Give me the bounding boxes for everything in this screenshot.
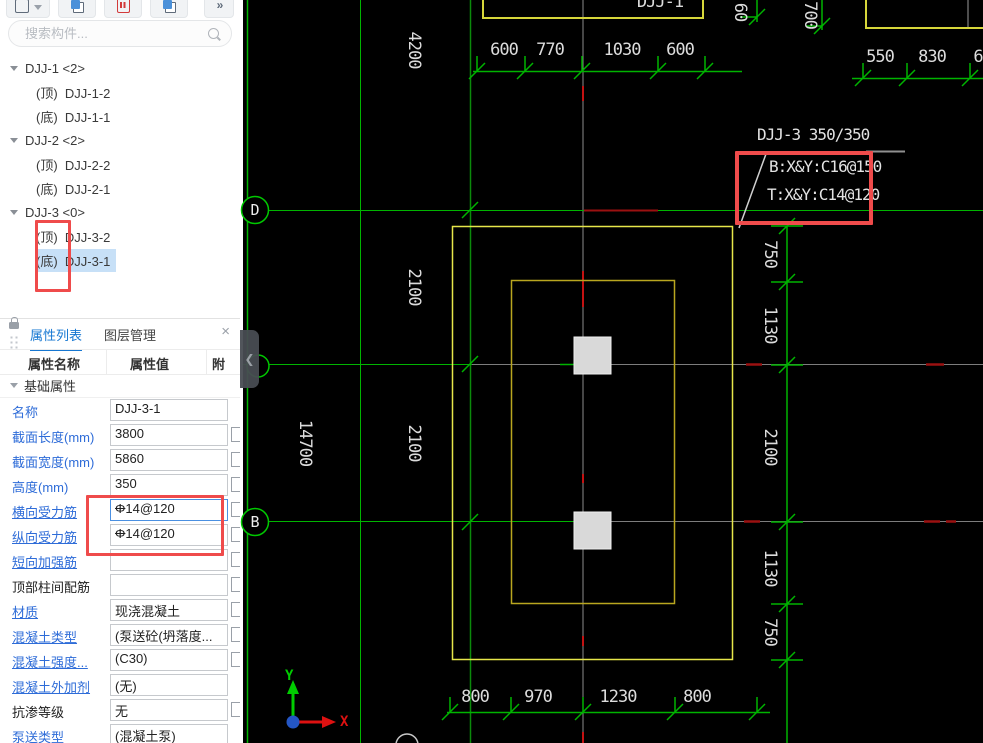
property-row-admixture: 混凝土外加剂 (无) [0, 672, 240, 697]
column-entity[interactable] [574, 337, 611, 374]
material-field[interactable]: 现浇混凝土 [110, 599, 228, 621]
collapse-triangle-icon[interactable] [10, 210, 18, 215]
dim-label: 4200 [404, 32, 424, 69]
dim-label: 550 [866, 47, 894, 67]
length-field[interactable]: 3800 [110, 424, 228, 446]
dim-label: 1230 [600, 687, 637, 707]
property-row-pump-type: 泵送类型 (混凝土泵) [0, 722, 240, 743]
double-chevron-icon: » [217, 0, 222, 12]
highlight-box-rebar-fields [86, 495, 224, 556]
search-icon [208, 28, 219, 39]
close-icon[interactable]: × [221, 323, 230, 340]
attach-checkbox[interactable] [231, 452, 240, 467]
attach-checkbox[interactable] [231, 502, 240, 517]
highlight-box-tree [35, 220, 71, 292]
property-row-name: 名称 DJJ-3-1 [0, 397, 240, 422]
dim-label: 700 [800, 1, 820, 29]
ucs-x-label: X [340, 714, 348, 730]
slab-label-top: DJJ-1 [637, 0, 683, 12]
property-row-length: 截面长度(mm) 3800 [0, 422, 240, 447]
dim-label: 750 [760, 618, 780, 646]
grid-bubble-bottom[interactable] [396, 734, 418, 743]
collapse-triangle-icon[interactable] [10, 138, 18, 143]
dim-label: 600 [490, 40, 518, 60]
app-window: DJJ-1 600 770 1030 600 550 830 6 60 700 … [0, 0, 983, 743]
highlight-box-annotation [735, 151, 873, 225]
property-row-impermeability: 抗渗等级 无 [0, 697, 240, 722]
dim-label: 1130 [760, 307, 780, 344]
column-entity[interactable] [574, 512, 611, 549]
name-field[interactable]: DJJ-3-1 [110, 399, 228, 421]
property-table-header: 属性名称 属性值 附 [0, 349, 240, 375]
copy-icon [71, 0, 84, 13]
search-input[interactable] [23, 25, 197, 42]
admixture-field[interactable]: (无) [110, 674, 228, 696]
copy-button[interactable] [58, 0, 96, 18]
attach-checkbox[interactable] [231, 477, 240, 492]
panel-collapse-handle[interactable]: ❮ [240, 330, 259, 388]
property-row-top-column-rebar: 顶部柱间配筋 [0, 572, 240, 597]
property-row-width: 截面宽度(mm) 5860 [0, 447, 240, 472]
drag-grip-icon[interactable] [9, 335, 19, 349]
width-field[interactable]: 5860 [110, 449, 228, 471]
dim-label: 6 [973, 47, 982, 67]
foundation-outline-inner[interactable] [512, 281, 675, 604]
tree-item-djj1-2[interactable]: (顶) DJJ-1-2 [0, 80, 240, 104]
tree-item-djj2-1[interactable]: (底) DJJ-2-1 [0, 176, 240, 200]
tree-group-djj1[interactable]: DJJ-1 <2> [0, 56, 240, 80]
toolbar-more-button[interactable]: » [204, 0, 234, 18]
lock-icon[interactable] [9, 322, 19, 329]
dim-label: 770 [536, 40, 564, 60]
attach-checkbox[interactable] [231, 602, 240, 617]
ucs-y-label: Y [285, 668, 293, 684]
attach-checkbox[interactable] [231, 427, 240, 442]
grid-bubble-letter: B [250, 513, 259, 531]
property-row-concrete-type: 混凝土类型 (泵送砼(坍落度... [0, 622, 240, 647]
impermeability-field[interactable]: 无 [110, 699, 228, 721]
dim-label: 830 [918, 47, 946, 67]
foundation-outline-outer[interactable] [453, 227, 733, 660]
dim-label: 800 [683, 687, 711, 707]
tab-layer-manager[interactable]: 图层管理 [104, 325, 156, 344]
property-row-concrete-grade: 混凝土强度... (C30) [0, 647, 240, 672]
tab-property-list[interactable]: 属性列表 [30, 325, 82, 351]
trash-icon [117, 0, 130, 13]
property-row-material: 材质 现浇混凝土 [0, 597, 240, 622]
dim-label: 1030 [604, 40, 641, 60]
dim-label: 970 [524, 687, 552, 707]
chevron-down-icon [34, 5, 42, 10]
attach-checkbox[interactable] [231, 552, 240, 567]
collapse-triangle-icon[interactable] [10, 383, 18, 388]
component-panel: » DJJ-1 <2> (顶) DJJ-1-2 (底) DJJ-1-1 DJJ-… [0, 0, 240, 743]
concrete-type-field[interactable]: (泵送砼(坍落度... [110, 624, 228, 646]
dim-label: 600 [666, 40, 694, 60]
attach-checkbox[interactable] [231, 577, 240, 592]
layers-icon [163, 0, 176, 13]
dim-label: 2100 [404, 269, 424, 306]
collapse-triangle-icon[interactable] [10, 66, 18, 71]
concrete-grade-field[interactable]: (C30) [110, 649, 228, 671]
delete-button[interactable] [104, 0, 142, 18]
tree-group-djj2[interactable]: DJJ-2 <2> [0, 128, 240, 152]
grid-bubble-letter: D [250, 201, 259, 219]
dim-label: 2100 [404, 425, 424, 462]
dim-label: 1130 [760, 550, 780, 587]
attach-checkbox[interactable] [231, 702, 240, 717]
new-component-button[interactable] [6, 0, 50, 18]
layers-button[interactable] [150, 0, 188, 18]
pump-type-field[interactable]: (混凝土泵) [110, 724, 228, 743]
foundation-outline-topright[interactable] [866, 0, 983, 28]
rect-tool-icon [15, 0, 29, 13]
attach-checkbox[interactable] [231, 627, 240, 642]
property-row-height: 高度(mm) 350 [0, 472, 240, 497]
ucs-icon [287, 680, 337, 729]
dim-label: 800 [461, 687, 489, 707]
dim-label: 2100 [760, 429, 780, 466]
tree-item-djj1-1[interactable]: (底) DJJ-1-1 [0, 104, 240, 128]
property-group-basic[interactable]: 基础属性 [0, 373, 240, 398]
attach-checkbox[interactable] [231, 652, 240, 667]
dim-label: 14700 [295, 420, 315, 466]
annotation-title[interactable]: DJJ-3 350/350 [757, 125, 869, 144]
attach-checkbox[interactable] [231, 527, 240, 542]
dim-label: 750 [760, 240, 780, 268]
dim-label: 60 [730, 3, 750, 21]
tree-item-djj2-2[interactable]: (顶) DJJ-2-2 [0, 152, 240, 176]
search-box [8, 20, 232, 47]
top-column-rebar-field[interactable] [110, 574, 228, 596]
height-field[interactable]: 350 [110, 474, 228, 496]
